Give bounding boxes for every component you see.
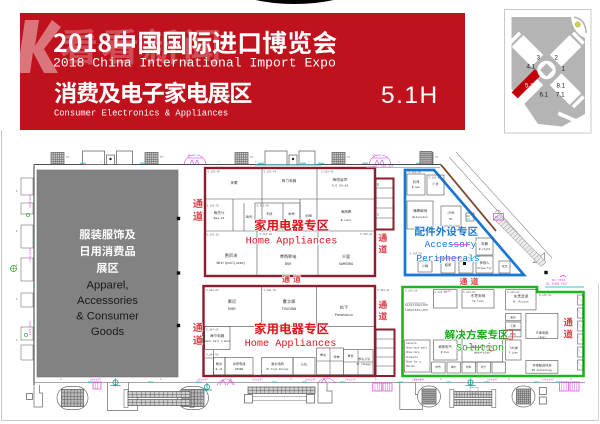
svg-text:Products: Products	[406, 356, 419, 359]
svg-text:14x147: 14x147	[252, 379, 263, 382]
svg-text:S.1A5-02: S.1A5-02	[507, 291, 520, 294]
svg-text:Accessories: Accessories	[77, 295, 138, 307]
svg-text:fh: fh	[347, 155, 351, 159]
svg-text:S.163-01: S.163-01	[360, 233, 373, 236]
svg-text:B-ok: B-ok	[216, 367, 223, 371]
svg-text:fh: fh	[250, 155, 254, 159]
svg-text:x2-fh 1417: x2-fh 1417	[28, 248, 32, 263]
svg-text:S.163-45: S.163-45	[208, 171, 221, 174]
svg-text:S.1A3-06: S.1A3-06	[409, 171, 422, 174]
svg-text:Show Care: Show Care	[406, 351, 420, 354]
svg-text:Mr.Fuji George: Mr.Fuji George	[267, 367, 289, 371]
svg-text:S.1B4-05: S.1B4-05	[206, 329, 219, 332]
svg-text:PN Technology: PN Technology	[532, 368, 553, 372]
svg-text:Hikvision: Hikvision	[412, 215, 428, 219]
svg-text:wc rest: wc rest	[552, 278, 565, 282]
svg-text:F.Lube: F.Lube	[509, 352, 519, 355]
svg-text:Haier mall h.Aute: Haier mall h.Aute	[204, 339, 231, 343]
svg-text:Panasonic: Panasonic	[335, 313, 353, 318]
svg-text:B-right: B-right	[479, 247, 491, 251]
svg-text:Home Appliances: Home Appliances	[245, 338, 337, 350]
svg-text:Snow wine mart: Snow wine mart	[406, 347, 428, 350]
svg-text:fh: fh	[435, 155, 439, 159]
svg-text:TV test: TV test	[472, 300, 484, 303]
svg-text:B.comr: B.comr	[341, 219, 352, 222]
svg-text:Room for a: Room for a	[406, 360, 422, 363]
svg-text:14x147: 14x147	[90, 379, 101, 382]
svg-text:SONY: SONY	[228, 308, 236, 312]
svg-text:14x147: 14x147	[197, 379, 208, 382]
svg-text:S.1B4-08: S.1B4-08	[206, 354, 219, 357]
svg-text:S.163-44: S.163-44	[264, 171, 277, 174]
svg-text:x1-x2: x1-x2	[187, 154, 196, 157]
svg-text:BSH: BSH	[285, 263, 291, 267]
svg-text:S.163-30: S.163-30	[257, 205, 270, 208]
svg-text:14x147: 14x147	[305, 379, 316, 382]
svg-text:S.1A5-01: S.1A5-01	[539, 294, 552, 297]
svg-text:FOXCONN: FOXCONN	[282, 308, 296, 312]
svg-text:Dream-fly: Dream-fly	[477, 266, 491, 270]
svg-text:HISEN: HISEN	[235, 368, 244, 371]
svg-text:At (Stage): At (Stage)	[356, 363, 372, 366]
svg-text:14x147: 14x147	[543, 379, 554, 382]
svg-text:SAMSUNG: SAMSUNG	[339, 263, 353, 267]
svg-text:x3-fh 1417: x3-fh 1417	[28, 321, 32, 336]
svg-text:Whirlpool(used): Whirlpool(used)	[217, 261, 246, 265]
svg-text:S.163-02: S.163-02	[260, 233, 273, 236]
svg-text:S.E 93-14: S.E 93-14	[332, 185, 348, 188]
svg-text:S.163-35: S.163-35	[207, 205, 220, 208]
svg-text:fh: fh	[160, 155, 164, 159]
svg-text:S.1B4-02: S.1B4-02	[264, 289, 277, 292]
svg-text:S1-FH01 FHC: S1-FH01 FHC	[546, 282, 567, 286]
svg-text:S.1A3-06: S.1A3-06	[173, 0, 600, 123]
svg-text:& Consumer: & Consumer	[76, 311, 139, 323]
svg-text:S.1A3-8E: S.1A3-8E	[429, 177, 442, 180]
svg-text:Distribution: Distribution	[405, 303, 428, 307]
svg-text:x1-fh 1417: x1-fh 1417	[28, 194, 32, 209]
svg-text:14x147: 14x147	[487, 379, 498, 382]
svg-text:Apparel,: Apparel,	[86, 280, 128, 292]
svg-text:Baw-91: Baw-91	[214, 217, 225, 220]
svg-text:(Aap): (Aap)	[538, 336, 546, 339]
svg-text:fh: fh	[66, 155, 70, 159]
svg-text:Solution: Solution	[456, 343, 504, 355]
svg-text:EL: EL	[495, 216, 499, 219]
svg-text:Home Appliances: Home Appliances	[246, 236, 338, 248]
svg-text:S.163-42: S.163-42	[321, 171, 334, 174]
svg-text:S.1A5-08: S.1A5-08	[405, 290, 418, 293]
svg-text:S1-ent: S1-ent	[414, 379, 425, 382]
svg-text:S.1B4-03: S.1B4-03	[206, 289, 219, 292]
svg-text:S.1A5-04: S.1A5-04	[463, 291, 476, 294]
svg-text:Lavazza: Lavazza	[406, 342, 417, 345]
svg-text:Mi: Mi	[449, 217, 453, 221]
svg-text:14x147: 14x147	[345, 379, 356, 382]
svg-text:S.1B4-01: S.1B4-01	[377, 289, 390, 292]
svg-text:Laboratories: Laboratories	[405, 308, 428, 312]
svg-text:R-box: R-box	[441, 350, 450, 354]
svg-text:x1-x2: x1-x2	[372, 154, 381, 157]
svg-text:M. Aircon: M. Aircon	[513, 300, 528, 304]
svg-text:B-gen: B-gen	[412, 186, 421, 189]
svg-text:Marian: Marian	[406, 365, 416, 368]
svg-text:Goods: Goods	[91, 326, 125, 338]
svg-text:S.163-03: S.163-03	[207, 234, 220, 237]
svg-text:info: info	[444, 289, 451, 293]
